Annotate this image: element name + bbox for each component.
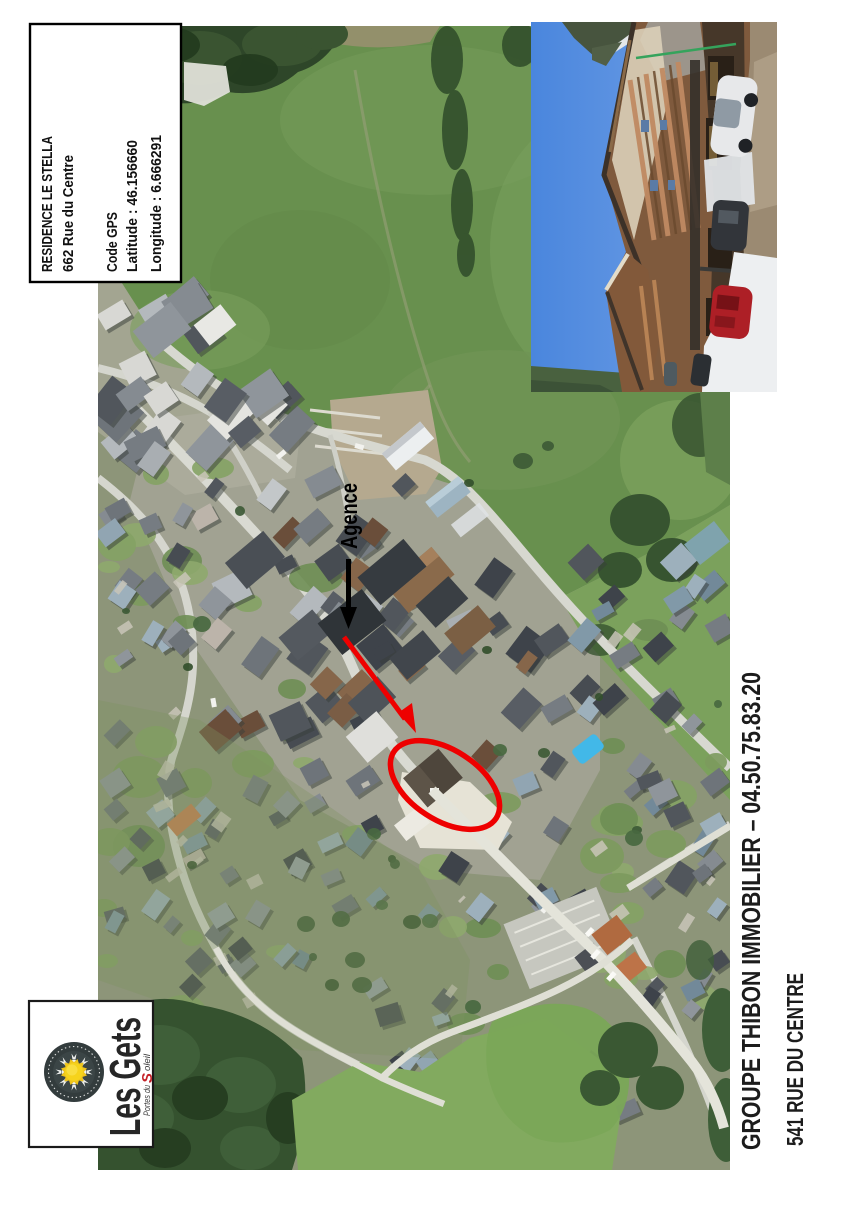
svg-text:Code GPS: Code GPS: [105, 212, 121, 272]
svg-text:Agence: Agence: [336, 483, 362, 549]
svg-text:Longitude : 6.666291: Longitude : 6.666291: [149, 135, 165, 272]
svg-text:RESIDENCE LE STELLA: RESIDENCE LE STELLA: [40, 136, 56, 272]
svg-text:GROUPE THIBON IMMOBILIER – 04.: GROUPE THIBON IMMOBILIER – 04.50.75.83.2…: [736, 672, 766, 1150]
svg-text:S: S: [139, 1073, 156, 1083]
svg-text:541 RUE DU CENTRE: 541 RUE DU CENTRE: [782, 973, 808, 1146]
svg-text:Portes du: Portes du: [142, 1084, 153, 1116]
svg-text:662 Rue du Centre: 662 Rue du Centre: [61, 155, 77, 272]
svg-text:Latitude : 46.156660: Latitude : 46.156660: [125, 140, 141, 272]
svg-text:oleil: oleil: [142, 1053, 153, 1071]
